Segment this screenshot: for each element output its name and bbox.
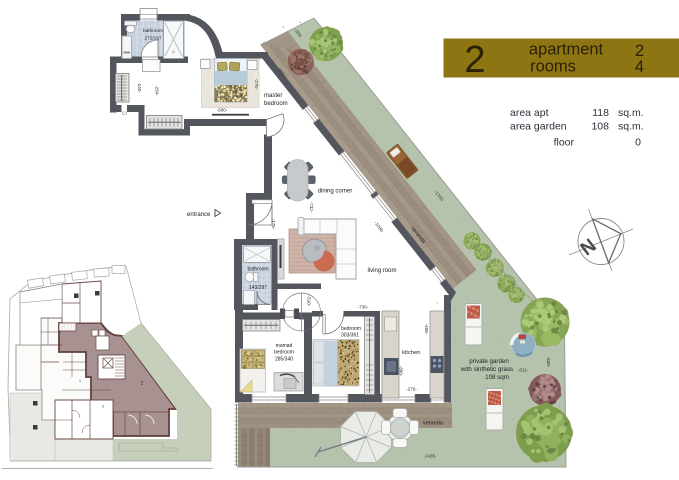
svg-text:-1096-: -1096- [373, 220, 385, 234]
svg-text:-732-: -732- [309, 202, 314, 213]
svg-text:4: 4 [635, 57, 644, 76]
svg-text:bedroom: bedroom [341, 326, 361, 332]
svg-text:-511-: -511- [518, 368, 529, 373]
svg-text:rooms: rooms [530, 58, 576, 76]
svg-text:bedroom: bedroom [274, 350, 294, 356]
svg-text:veranda: veranda [423, 421, 444, 427]
svg-text:sq.m.: sq.m. [618, 107, 644, 119]
svg-text:108 sqm: 108 sqm [485, 374, 509, 381]
svg-text:N: N [577, 235, 601, 260]
svg-text:303/361: 303/361 [341, 333, 359, 339]
svg-text:-630-: -630- [546, 357, 551, 368]
svg-text:area apt: area apt [510, 107, 549, 119]
svg-text:sq.m.: sq.m. [618, 121, 644, 133]
svg-text:kitchen: kitchen [402, 350, 420, 356]
svg-text:-175-: -175- [271, 219, 276, 230]
svg-text:-140-: -140- [137, 82, 142, 93]
svg-text:-279-: -279- [406, 387, 417, 392]
svg-text:2: 2 [141, 381, 144, 387]
svg-text:bathroom: bathroom [143, 28, 163, 33]
svg-text:-254-: -254- [155, 85, 160, 96]
svg-text:272/197: 272/197 [145, 36, 162, 41]
svg-text:0: 0 [635, 137, 641, 149]
svg-text:-510-: -510- [307, 296, 312, 307]
svg-text:area garden: area garden [510, 121, 567, 133]
svg-text:-406-: -406- [424, 324, 429, 335]
svg-text:143/297: 143/297 [249, 285, 267, 291]
svg-text:118: 118 [592, 107, 609, 119]
svg-text:with sinthetic grass: with sinthetic grass [460, 366, 513, 373]
svg-text:apartment: apartment [529, 41, 604, 59]
svg-text:floor: floor [554, 137, 575, 149]
svg-text:master: master [264, 93, 282, 99]
svg-text:285/340: 285/340 [275, 357, 293, 363]
svg-text:dining corner: dining corner [318, 189, 353, 195]
svg-text:entrance: entrance [187, 212, 211, 218]
svg-text:-680-: -680- [217, 108, 228, 113]
svg-text:-1435-: -1435- [423, 454, 437, 459]
svg-text:living room: living room [367, 268, 396, 274]
svg-text:bedroom: bedroom [264, 101, 288, 107]
svg-text:108: 108 [591, 121, 609, 133]
svg-text:-730-: -730- [358, 305, 369, 310]
svg-text:2: 2 [464, 39, 485, 81]
svg-text:-275-: -275- [254, 79, 259, 90]
svg-text:-360-: -360- [399, 366, 404, 377]
svg-text:mamad: mamad [276, 343, 293, 349]
svg-text:bathroom: bathroom [247, 267, 268, 273]
svg-text:private garden: private garden [469, 358, 509, 365]
